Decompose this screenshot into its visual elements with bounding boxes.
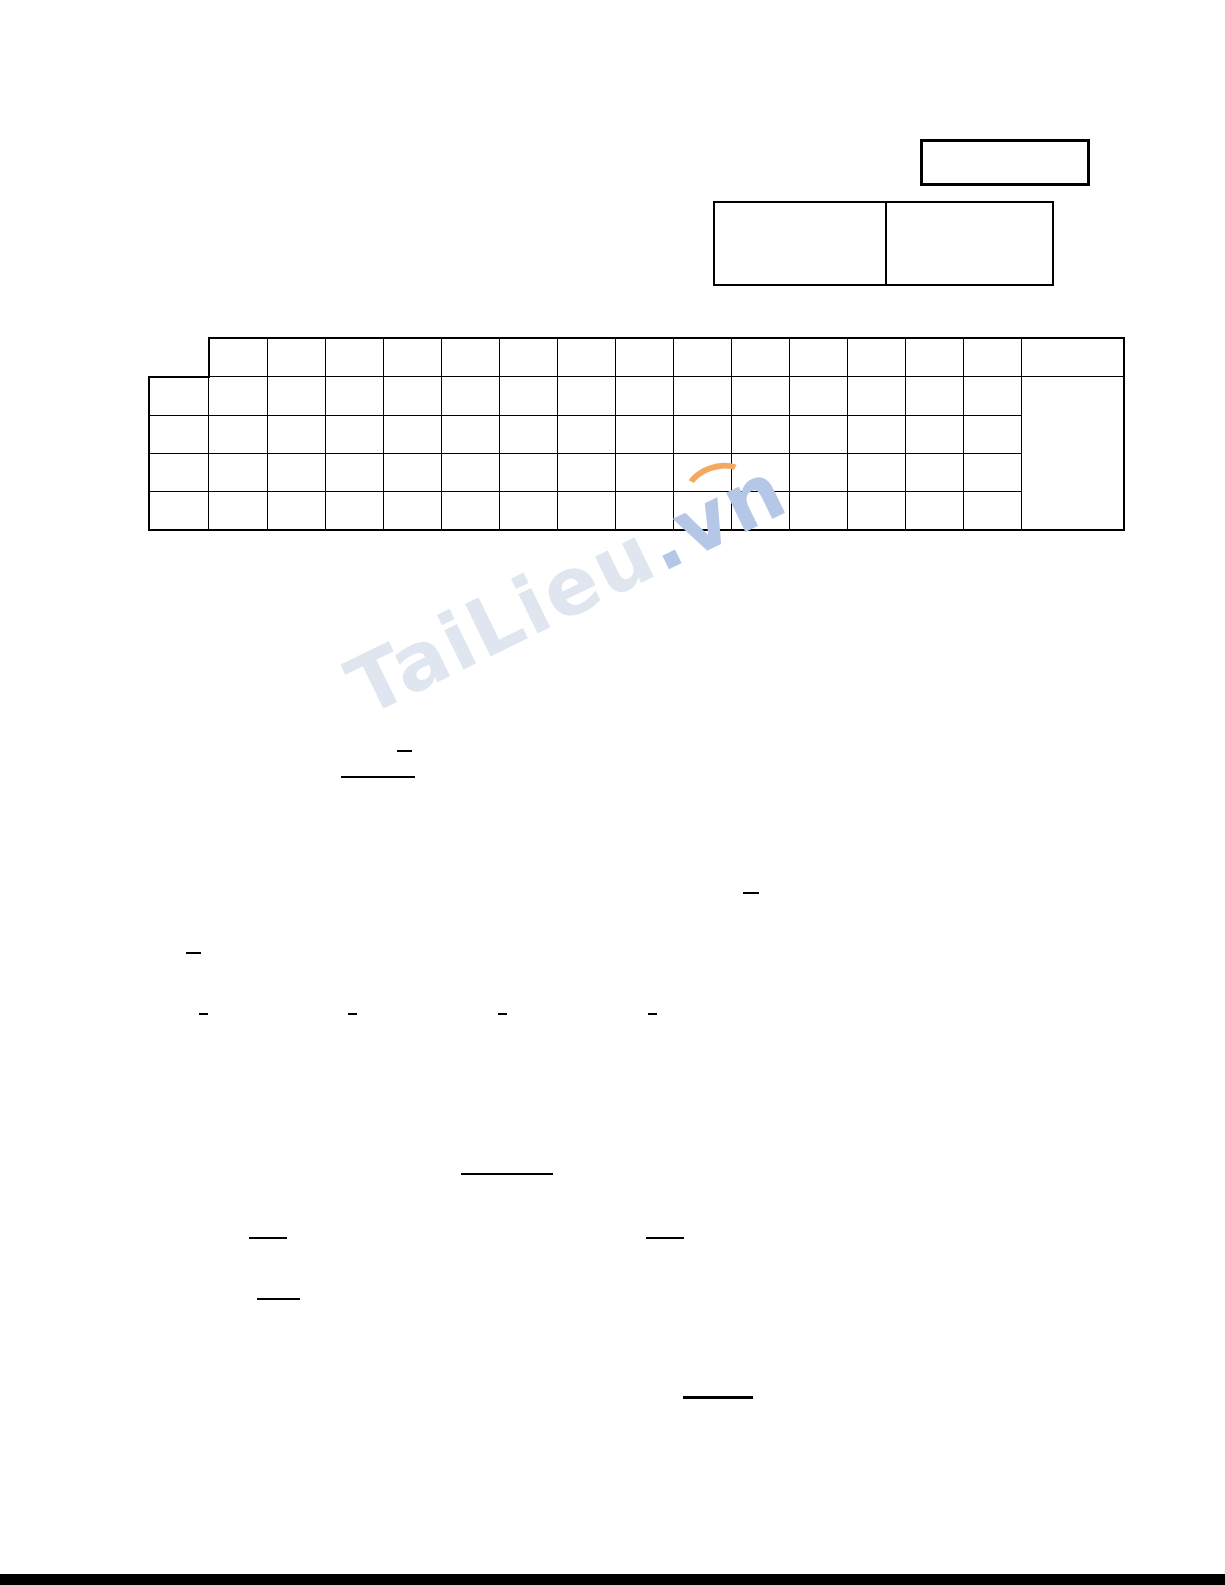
grid-cell <box>673 491 731 530</box>
fraction-bar-mark <box>341 776 415 778</box>
grid-cell <box>499 377 557 416</box>
grid-merged-right-cell <box>1021 377 1124 530</box>
grid-cell <box>267 453 325 491</box>
grid-row-label-cell <box>149 415 209 453</box>
grid-cell <box>789 491 847 530</box>
top-right-score-box <box>920 139 1090 186</box>
grid-cell <box>325 415 383 453</box>
grid-cell <box>731 453 789 491</box>
grid-cell <box>267 415 325 453</box>
grid-cell <box>557 491 615 530</box>
grid-cell <box>847 453 905 491</box>
two-cell-table-left-cell <box>715 203 887 284</box>
grid-header-cell <box>499 338 557 377</box>
fraction-overbar-mark <box>397 750 412 752</box>
grid-header-cell <box>267 338 325 377</box>
grid-corner-blank <box>149 338 209 377</box>
grid-header-cell <box>209 338 268 377</box>
grid-cell <box>615 377 673 416</box>
underline-mark-2 <box>249 1237 287 1239</box>
underline-mark-3 <box>646 1237 684 1239</box>
overbar-mark-4 <box>348 1013 357 1015</box>
grid-cell <box>731 491 789 530</box>
grid-cell <box>905 415 963 453</box>
grid-cell <box>209 377 268 416</box>
grid-cell <box>731 377 789 416</box>
grid-header-cell <box>847 338 905 377</box>
grid-cell <box>383 377 441 416</box>
grid-row-label-cell <box>149 491 209 530</box>
grid-cell <box>789 415 847 453</box>
grid-cell <box>905 453 963 491</box>
grid-cell <box>441 377 499 416</box>
grid-cell <box>499 415 557 453</box>
grid-cell <box>325 377 383 416</box>
grid-cell <box>789 453 847 491</box>
grid-header-cell <box>789 338 847 377</box>
grid-cell <box>963 377 1021 416</box>
underline-mark-4 <box>257 1298 300 1300</box>
grid-cell <box>557 377 615 416</box>
grid-header-wide-cell <box>1021 338 1124 377</box>
grid-cell <box>557 415 615 453</box>
grid-row-label-cell <box>149 453 209 491</box>
grid-cell <box>383 453 441 491</box>
grid-cell <box>209 453 268 491</box>
grid-cell <box>441 415 499 453</box>
grid-cell <box>789 377 847 416</box>
underline-mark-1 <box>461 1173 553 1175</box>
grid-cell <box>905 377 963 416</box>
two-cell-header-table <box>713 201 1054 286</box>
overbar-mark-6 <box>648 1013 657 1015</box>
grid-cell <box>383 415 441 453</box>
grid-cell <box>209 491 268 530</box>
grid-cell <box>383 491 441 530</box>
overbar-mark-2 <box>186 952 201 954</box>
grid-cell <box>325 491 383 530</box>
grid-row-label-cell <box>149 377 209 416</box>
grid-cell <box>499 491 557 530</box>
grid-cell <box>499 453 557 491</box>
overbar-mark-3 <box>199 1013 208 1015</box>
grid-cell <box>963 415 1021 453</box>
grid-cell <box>557 453 615 491</box>
underline-mark-5 <box>683 1396 753 1399</box>
grid-cell <box>847 377 905 416</box>
grid-header-cell <box>325 338 383 377</box>
grid-cell <box>847 491 905 530</box>
grid-cell <box>963 491 1021 530</box>
overbar-mark-1 <box>743 892 759 894</box>
grid-cell <box>673 415 731 453</box>
grid-header-cell <box>557 338 615 377</box>
grid-cell <box>325 453 383 491</box>
grid-cell <box>963 453 1021 491</box>
grid-header-cell <box>383 338 441 377</box>
grid-cell <box>267 377 325 416</box>
grid-header-cell <box>731 338 789 377</box>
grid-cell <box>615 415 673 453</box>
grid-header-cell <box>615 338 673 377</box>
grid-cell <box>731 415 789 453</box>
grid-cell <box>905 491 963 530</box>
grid-header-cell <box>905 338 963 377</box>
two-cell-table-right-cell <box>887 203 1052 284</box>
grid-cell <box>673 377 731 416</box>
bottom-edge-bar <box>0 1574 1225 1585</box>
watermark-text: TaiLieu <box>333 506 670 734</box>
grid-cell <box>847 415 905 453</box>
grid-cell <box>441 491 499 530</box>
grid-header-cell <box>441 338 499 377</box>
grid-cell <box>615 491 673 530</box>
grid-cell <box>267 491 325 530</box>
overbar-mark-5 <box>498 1013 507 1015</box>
grid-cell <box>209 415 268 453</box>
grid-cell <box>615 453 673 491</box>
grid-header-cell <box>963 338 1021 377</box>
grid-cell <box>441 453 499 491</box>
answer-grid-table <box>148 337 1125 531</box>
grid-cell <box>673 453 731 491</box>
grid-header-cell <box>673 338 731 377</box>
